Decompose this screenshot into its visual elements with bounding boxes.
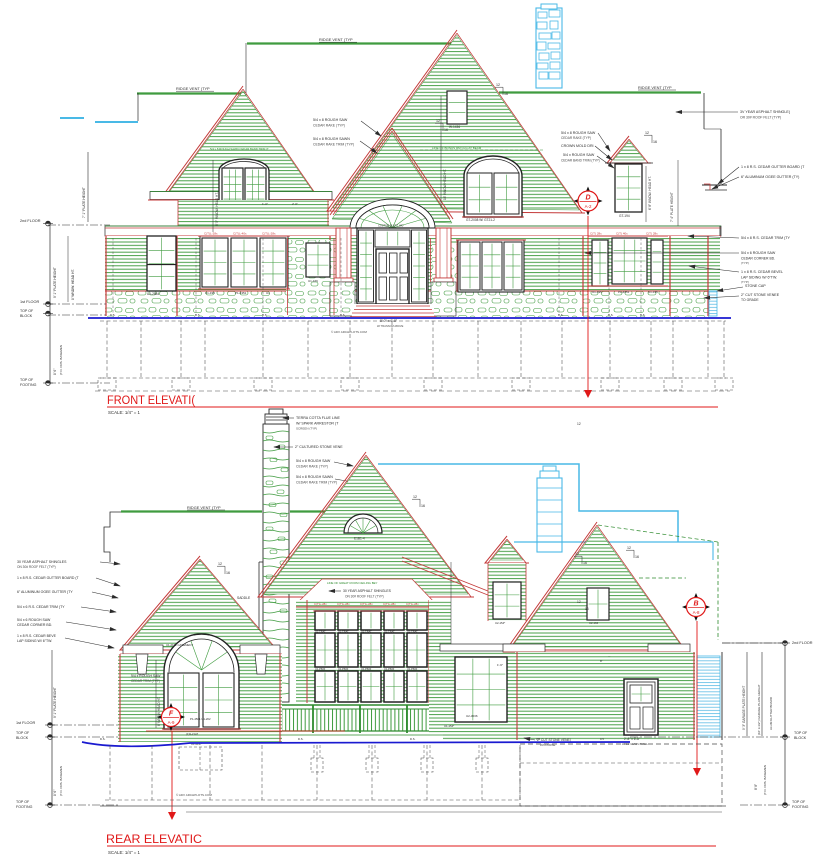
svg-text:←: ← (608, 654, 611, 658)
svg-text:5/4 x 8 ROUGH SAW: 5/4 x 8 ROUGH SAW (561, 131, 596, 135)
svg-text:U1-P600: U1-P600 (338, 667, 349, 671)
svg-text:5/4 x 8 ROUGH SAWN: 5/4 x 8 ROUGH SAWN (313, 137, 350, 141)
svg-text:BLOCK: BLOCK (794, 736, 807, 740)
svg-text:D.S.: D.S. (100, 737, 106, 741)
svg-text:5/4 x 6 ROUGH SAW: 5/4 x 6 ROUGH SAW (17, 618, 51, 622)
svg-text:1'-0": 1'-0" (262, 202, 268, 206)
svg-text:RIDGE VENT (TYP: RIDGE VENT (TYP (176, 86, 210, 91)
svg-text:5/4 x 8 ROUGH SAWN CEDAR BAND: 5/4 x 8 ROUGH SAWN CEDAR BAND TRIM (T (210, 147, 269, 151)
svg-text:(T.O. CRS. BASEMEN: (T.O. CRS. BASEMEN (59, 766, 63, 796)
svg-text:D.S.: D.S. (340, 313, 346, 317)
svg-text:2" CUT STONE VENEE: 2" CUT STONE VENEE (741, 293, 780, 297)
svg-text:12: 12 (413, 495, 417, 499)
svg-text:A-9: A-9 (168, 720, 175, 725)
svg-text:16: 16 (504, 92, 508, 96)
svg-text:U1-195: U1-195 (648, 290, 658, 294)
svg-text:9' 1" PLATE HEIGHT: 9' 1" PLATE HEIGHT (53, 267, 57, 298)
svg-text:D.S.: D.S. (608, 313, 614, 317)
svg-text:1st FLOOR: 1st FLOOR (16, 721, 35, 725)
svg-text:P1-4351: P1-4351 (235, 291, 247, 295)
svg-text:CUSTOM ELLPT. WD: CUSTOM ELLPT. WD (378, 224, 403, 228)
svg-text:LAP SIDING W/ 6"TW.: LAP SIDING W/ 6"TW. (17, 639, 52, 643)
svg-text:12: 12 (575, 552, 579, 556)
svg-text:C(T)L-28x: C(T)L-28x (262, 232, 276, 236)
svg-text:U2-3036: U2-3036 (466, 714, 478, 718)
svg-text:U1-TRAT: U1-TRAT (407, 630, 418, 634)
svg-text:30 YEAR ASPHALT SHINGLES: 30 YEAR ASPHALT SHINGLES (17, 560, 67, 564)
svg-text:TOP OF: TOP OF (20, 378, 34, 382)
svg-text:U1-P600: U1-P600 (407, 667, 418, 671)
svg-text:1st FLOOR: 1st FLOOR (20, 300, 39, 304)
svg-text:F: F (169, 711, 174, 718)
svg-text:ON 30# ROOF FELT (TYP): ON 30# ROOF FELT (TYP) (17, 565, 56, 569)
svg-text:U1-TRAT: U1-TRAT (315, 630, 326, 634)
svg-text:D.S.: D.S. (558, 313, 564, 317)
svg-text:GT-2008 W/ GT21-2: GT-2008 W/ GT21-2 (466, 218, 495, 222)
svg-text:CEDAR CORNER BD.: CEDAR CORNER BD. (741, 257, 775, 261)
svg-text:8' 8": 8' 8" (754, 784, 758, 790)
svg-text:C(T)L-28x: C(T)L-28x (314, 602, 327, 606)
svg-text:5/4 x 8 R.S. CEDAR TRIM (TY: 5/4 x 8 R.S. CEDAR TRIM (TY (741, 236, 790, 240)
svg-text:U1-2102 CASEMENT: U1-2102 CASEMENT (166, 643, 193, 647)
svg-text:C(T)L-28x: C(T)L-28x (337, 602, 350, 606)
svg-text:1'-6": 1'-6" (497, 663, 503, 667)
svg-text:D.S.: D.S. (410, 737, 416, 741)
svg-text:C(T)L-28x: C(T)L-28x (383, 602, 396, 606)
svg-text:16' WNDW HEAD HT.: 16' WNDW HEAD HT. (443, 169, 447, 200)
svg-text:U1-195: U1-195 (205, 291, 215, 295)
svg-text:(10' 3-1/2") GARAGE PLATE HEIG: (10' 3-1/2") GARAGE PLATE HEIGHT (757, 684, 761, 735)
svg-text:W/ TRANSOM ABOVE: W/ TRANSOM ABOVE (377, 324, 404, 328)
svg-text:5/4 x ROUGH SAW: 5/4 x ROUGH SAW (563, 153, 595, 157)
svg-text:BLOCK: BLOCK (16, 736, 29, 740)
svg-text:SADDLE: SADDLE (237, 596, 251, 600)
svg-text:8' WNDW HEAD HT.: 8' WNDW HEAD HT. (157, 697, 161, 726)
svg-text:LINE OF GREAT ROOM CEILING BEY: LINE OF GREAT ROOM CEILING BEY (327, 581, 378, 585)
svg-text:5/4 x 6 R.S. CEDAR TRIM (TY: 5/4 x 6 R.S. CEDAR TRIM (TY (17, 605, 65, 609)
svg-text:U1-195: U1-195 (592, 290, 602, 294)
svg-text:12: 12 (577, 422, 581, 426)
svg-text:(T.O. CRS. BASEMEN: (T.O. CRS. BASEMEN (763, 765, 767, 795)
svg-text:FOOTING: FOOTING (20, 383, 37, 387)
svg-text:1 x 8 R.S. CEDAR BEVEL: 1 x 8 R.S. CEDAR BEVEL (741, 270, 783, 274)
svg-text:12: 12 (496, 83, 500, 87)
svg-text:TOP OF: TOP OF (16, 731, 30, 735)
svg-text:16: 16 (585, 607, 589, 611)
svg-text:D.S.: D.S. (110, 313, 116, 317)
svg-text:8' 6": 8' 6" (53, 789, 57, 796)
svg-text:16: 16 (226, 571, 230, 575)
svg-text:CEDAR BAND TRIM (TYP): CEDAR BAND TRIM (TYP) (561, 159, 600, 163)
svg-text:CEDAR RAKE TRIM (TYP): CEDAR RAKE TRIM (TYP) (296, 481, 337, 485)
svg-text:TERRA COTTA FLUE LINE: TERRA COTTA FLUE LINE (296, 416, 340, 420)
svg-text:TOP OF: TOP OF (792, 800, 806, 804)
svg-text:W/COURSE: W/COURSE (540, 743, 556, 747)
svg-text:U1-154*: U1-154* (444, 724, 455, 728)
svg-text:2nd FLOOR: 2nd FLOOR (792, 641, 813, 645)
svg-text:E1B1-4: E1B1-4 (354, 537, 365, 541)
svg-text:C(T)L-28x: C(T)L-28x (204, 232, 218, 236)
svg-text:U1: U1 (266, 291, 270, 295)
svg-text:D: D (585, 195, 590, 202)
svg-text:D.S.: D.S. (640, 313, 646, 317)
svg-text:(T.O. CRS. BASEMEN: (T.O. CRS. BASEMEN (59, 345, 63, 375)
svg-text:P1-4501 U1-202: P1-4501 U1-202 (190, 717, 211, 721)
svg-text:5/4 x 8 ROUGH SAW: 5/4 x 8 ROUGH SAW (313, 118, 348, 122)
svg-text:0.5: 0.5 (536, 737, 540, 741)
svg-text:U1-TRAT: U1-TRAT (361, 630, 372, 634)
svg-text:TO GRADE: TO GRADE (741, 298, 759, 302)
svg-text:C(T)L-28x: C(T)L-28x (406, 602, 419, 606)
svg-text:2nd FLOOR: 2nd FLOOR (20, 219, 41, 223)
svg-text:6" ALUMINUM OGEE GUTTER (TY): 6" ALUMINUM OGEE GUTTER (TY) (741, 175, 799, 179)
svg-text:SCALE: 1/4" = 1: SCALE: 1/4" = 1 (108, 850, 141, 855)
svg-text:U1-P600: U1-P600 (361, 667, 372, 671)
svg-text:U2-154*: U2-154* (495, 621, 506, 625)
svg-text:RIDGE VENT (TYP: RIDGE VENT (TYP (319, 37, 353, 42)
svg-text:C(T) 40x: C(T) 40x (616, 232, 628, 236)
svg-text:CEDAR TRIM (TYP): CEDAR TRIM (TYP) (131, 679, 160, 683)
svg-text:12: 12 (627, 546, 631, 550)
svg-text:U1-TRAT: U1-TRAT (338, 630, 349, 634)
svg-text:2" CULTURED STONE VENE: 2" CULTURED STONE VENE (295, 445, 343, 449)
svg-text:ALUM GUTTER BOARD: ALUM GUTTER BOARD (769, 696, 773, 730)
svg-text:CROWN MOLD DRI: CROWN MOLD DRI (561, 144, 594, 148)
svg-text:© ADV ARCHPLOTS.COM: © ADV ARCHPLOTS.COM (331, 330, 367, 334)
svg-text:8' 5" WNDW. HEAD HT.: 8' 5" WNDW. HEAD HT. (215, 192, 219, 226)
svg-text:C(T) 28x: C(T) 28x (590, 232, 602, 236)
svg-text:FRONT ELEVATI(: FRONT ELEVATI( (107, 395, 195, 407)
svg-text:9' 3" GARAGE PLATE HEIGHT: 9' 3" GARAGE PLATE HEIGHT (742, 686, 746, 730)
svg-text:2'-8" x 6'-8": 2'-8" x 6'-8" (624, 737, 640, 741)
svg-text:9' 1" PLATE HEIGHT: 9' 1" PLATE HEIGHT (53, 687, 57, 718)
svg-text:A-8: A-8 (693, 610, 700, 615)
svg-text:CEDAR RAKE (TYP): CEDAR RAKE (TYP) (561, 136, 591, 140)
svg-text:12: 12 (577, 600, 581, 604)
svg-text:5/4 x 6 ROUGH SAW: 5/4 x 6 ROUGH SAW (741, 251, 776, 255)
svg-text:16: 16 (653, 140, 657, 144)
svg-text:C(T)L-40x: C(T)L-40x (233, 232, 247, 236)
svg-text:D.S.: D.S. (262, 313, 268, 317)
svg-text:REAR ELEVATIC: REAR ELEVATIC (106, 834, 202, 846)
svg-text:U1-P600: U1-P600 (384, 667, 395, 671)
svg-text:CEDAR CORNER BD.: CEDAR CORNER BD. (17, 623, 52, 627)
svg-text:7' 1" PLATE HEIGHT: 7' 1" PLATE HEIGHT (82, 187, 86, 218)
svg-text:D.S.: D.S. (298, 737, 304, 741)
svg-text:BLOCK: BLOCK (20, 314, 33, 318)
svg-text:12: 12 (436, 119, 440, 123)
svg-text:1 x 8 R.S. CEDAR BEVE: 1 x 8 R.S. CEDAR BEVE (17, 634, 57, 638)
svg-text:U2-166: U2-166 (589, 621, 599, 625)
svg-text:A-2: A-2 (585, 204, 592, 209)
svg-text:CEDAR RAKE (TYP): CEDAR RAKE (TYP) (313, 124, 345, 128)
svg-text:FOOTING: FOOTING (16, 805, 33, 809)
svg-text:U1-P600: U1-P600 (315, 667, 326, 671)
svg-text:LINE OF BONUS RM CLG AT BEAM: LINE OF BONUS RM CLG AT BEAM (432, 146, 482, 150)
svg-text:C(T)L-28x: C(T)L-28x (360, 602, 373, 606)
svg-text:FOOTING: FOOTING (792, 805, 809, 809)
svg-text:B: B (693, 601, 698, 608)
svg-text:STONE CAP: STONE CAP (745, 284, 766, 288)
svg-text:TOP OF: TOP OF (794, 731, 808, 735)
svg-text:OR 30# ROOF FELT (TYP): OR 30# ROOF FELT (TYP) (740, 116, 781, 120)
svg-text:CEDAR RAKE TRIM (TYP): CEDAR RAKE TRIM (TYP) (313, 143, 354, 147)
svg-text:RIDGE VENT (TYP: RIDGE VENT (TYP (638, 85, 672, 90)
svg-text:6' 8" WNDW. HEAD HT.: 6' 8" WNDW. HEAD HT. (648, 176, 652, 210)
svg-text:12: 12 (645, 131, 649, 135)
svg-text:© ADV ARCHPLOTS.COM: © ADV ARCHPLOTS.COM (176, 793, 212, 797)
svg-text:16: 16 (444, 128, 448, 132)
svg-text:(TYP): (TYP) (741, 261, 749, 265)
svg-text:8' 6": 8' 6" (53, 368, 57, 375)
svg-text:P1-4351: P1-4351 (618, 290, 630, 294)
svg-text:W/ SPARK ARRESTOR (T: W/ SPARK ARRESTOR (T (296, 422, 339, 426)
svg-text:(1)9-2147: (1)9-2147 (186, 732, 199, 736)
svg-text:0.5: 0.5 (600, 737, 604, 741)
svg-text:LAP SIDING W/ 6"TW.: LAP SIDING W/ 6"TW. (741, 276, 777, 280)
svg-text:1 x 8 R.S. CEDAR GUTTER BOARD: 1 x 8 R.S. CEDAR GUTTER BOARD (T (741, 165, 805, 169)
svg-text:U1-TRAT: U1-TRAT (384, 630, 395, 634)
svg-text:SCALE: 1/4" = 1: SCALE: 1/4" = 1 (108, 410, 141, 415)
svg-text:W-1436: W-1436 (449, 125, 460, 129)
svg-text:TOP OF: TOP OF (20, 309, 34, 313)
svg-text:30 YEAR ASPHALT SHINGLES: 30 YEAR ASPHALT SHINGLES (343, 589, 392, 593)
svg-text:U1-2884: U1-2884 (147, 292, 159, 296)
svg-text:C(T) 28x: C(T) 28x (646, 232, 658, 236)
svg-text:6" ALUMINUM OGEE GUTTER (TY: 6" ALUMINUM OGEE GUTTER (TY (17, 590, 73, 594)
svg-text:16: 16 (635, 555, 639, 559)
svg-text:GT-194: GT-194 (619, 214, 630, 218)
svg-text:ON 30# ROOF FELT (TYP): ON 30# ROOF FELT (TYP) (345, 595, 384, 599)
svg-text:8": 8" (600, 659, 603, 663)
svg-text:7' 4" PLATE HEIGHT: 7' 4" PLATE HEIGHT (670, 192, 674, 222)
svg-text:SCREEN (TYP): SCREEN (TYP) (296, 427, 317, 431)
svg-text:8' WNDW. HEAD HT.: 8' WNDW. HEAD HT. (71, 269, 75, 300)
svg-text:TOP OF: TOP OF (16, 800, 30, 804)
svg-text:3V YEAR ASPHALT SHINGLE(: 3V YEAR ASPHALT SHINGLE( (740, 110, 791, 114)
svg-text:5/4 x ROUGH SAW: 5/4 x ROUGH SAW (131, 674, 161, 678)
svg-text:2' 0": 2' 0" (292, 202, 298, 206)
svg-text:16: 16 (421, 504, 425, 508)
svg-text:CEDAR RAKE (TYP): CEDAR RAKE (TYP) (296, 465, 328, 469)
svg-text:RIDGE VENT (TYP: RIDGE VENT (TYP (187, 505, 221, 510)
svg-text:5/4 x 8 ROUGH SAWN: 5/4 x 8 ROUGH SAWN (296, 475, 333, 479)
svg-text:D.S.: D.S. (195, 313, 201, 317)
svg-text:1 x 8 R.S. CEDAR GUTTER BOARD: 1 x 8 R.S. CEDAR GUTTER BOARD (T (17, 576, 80, 580)
svg-text:16: 16 (583, 561, 587, 565)
svg-text:12: 12 (218, 562, 222, 566)
svg-text:5/4 x 8 ROUGH SAW: 5/4 x 8 ROUGH SAW (296, 459, 331, 463)
svg-text:U1-169: U1-169 (308, 279, 318, 283)
